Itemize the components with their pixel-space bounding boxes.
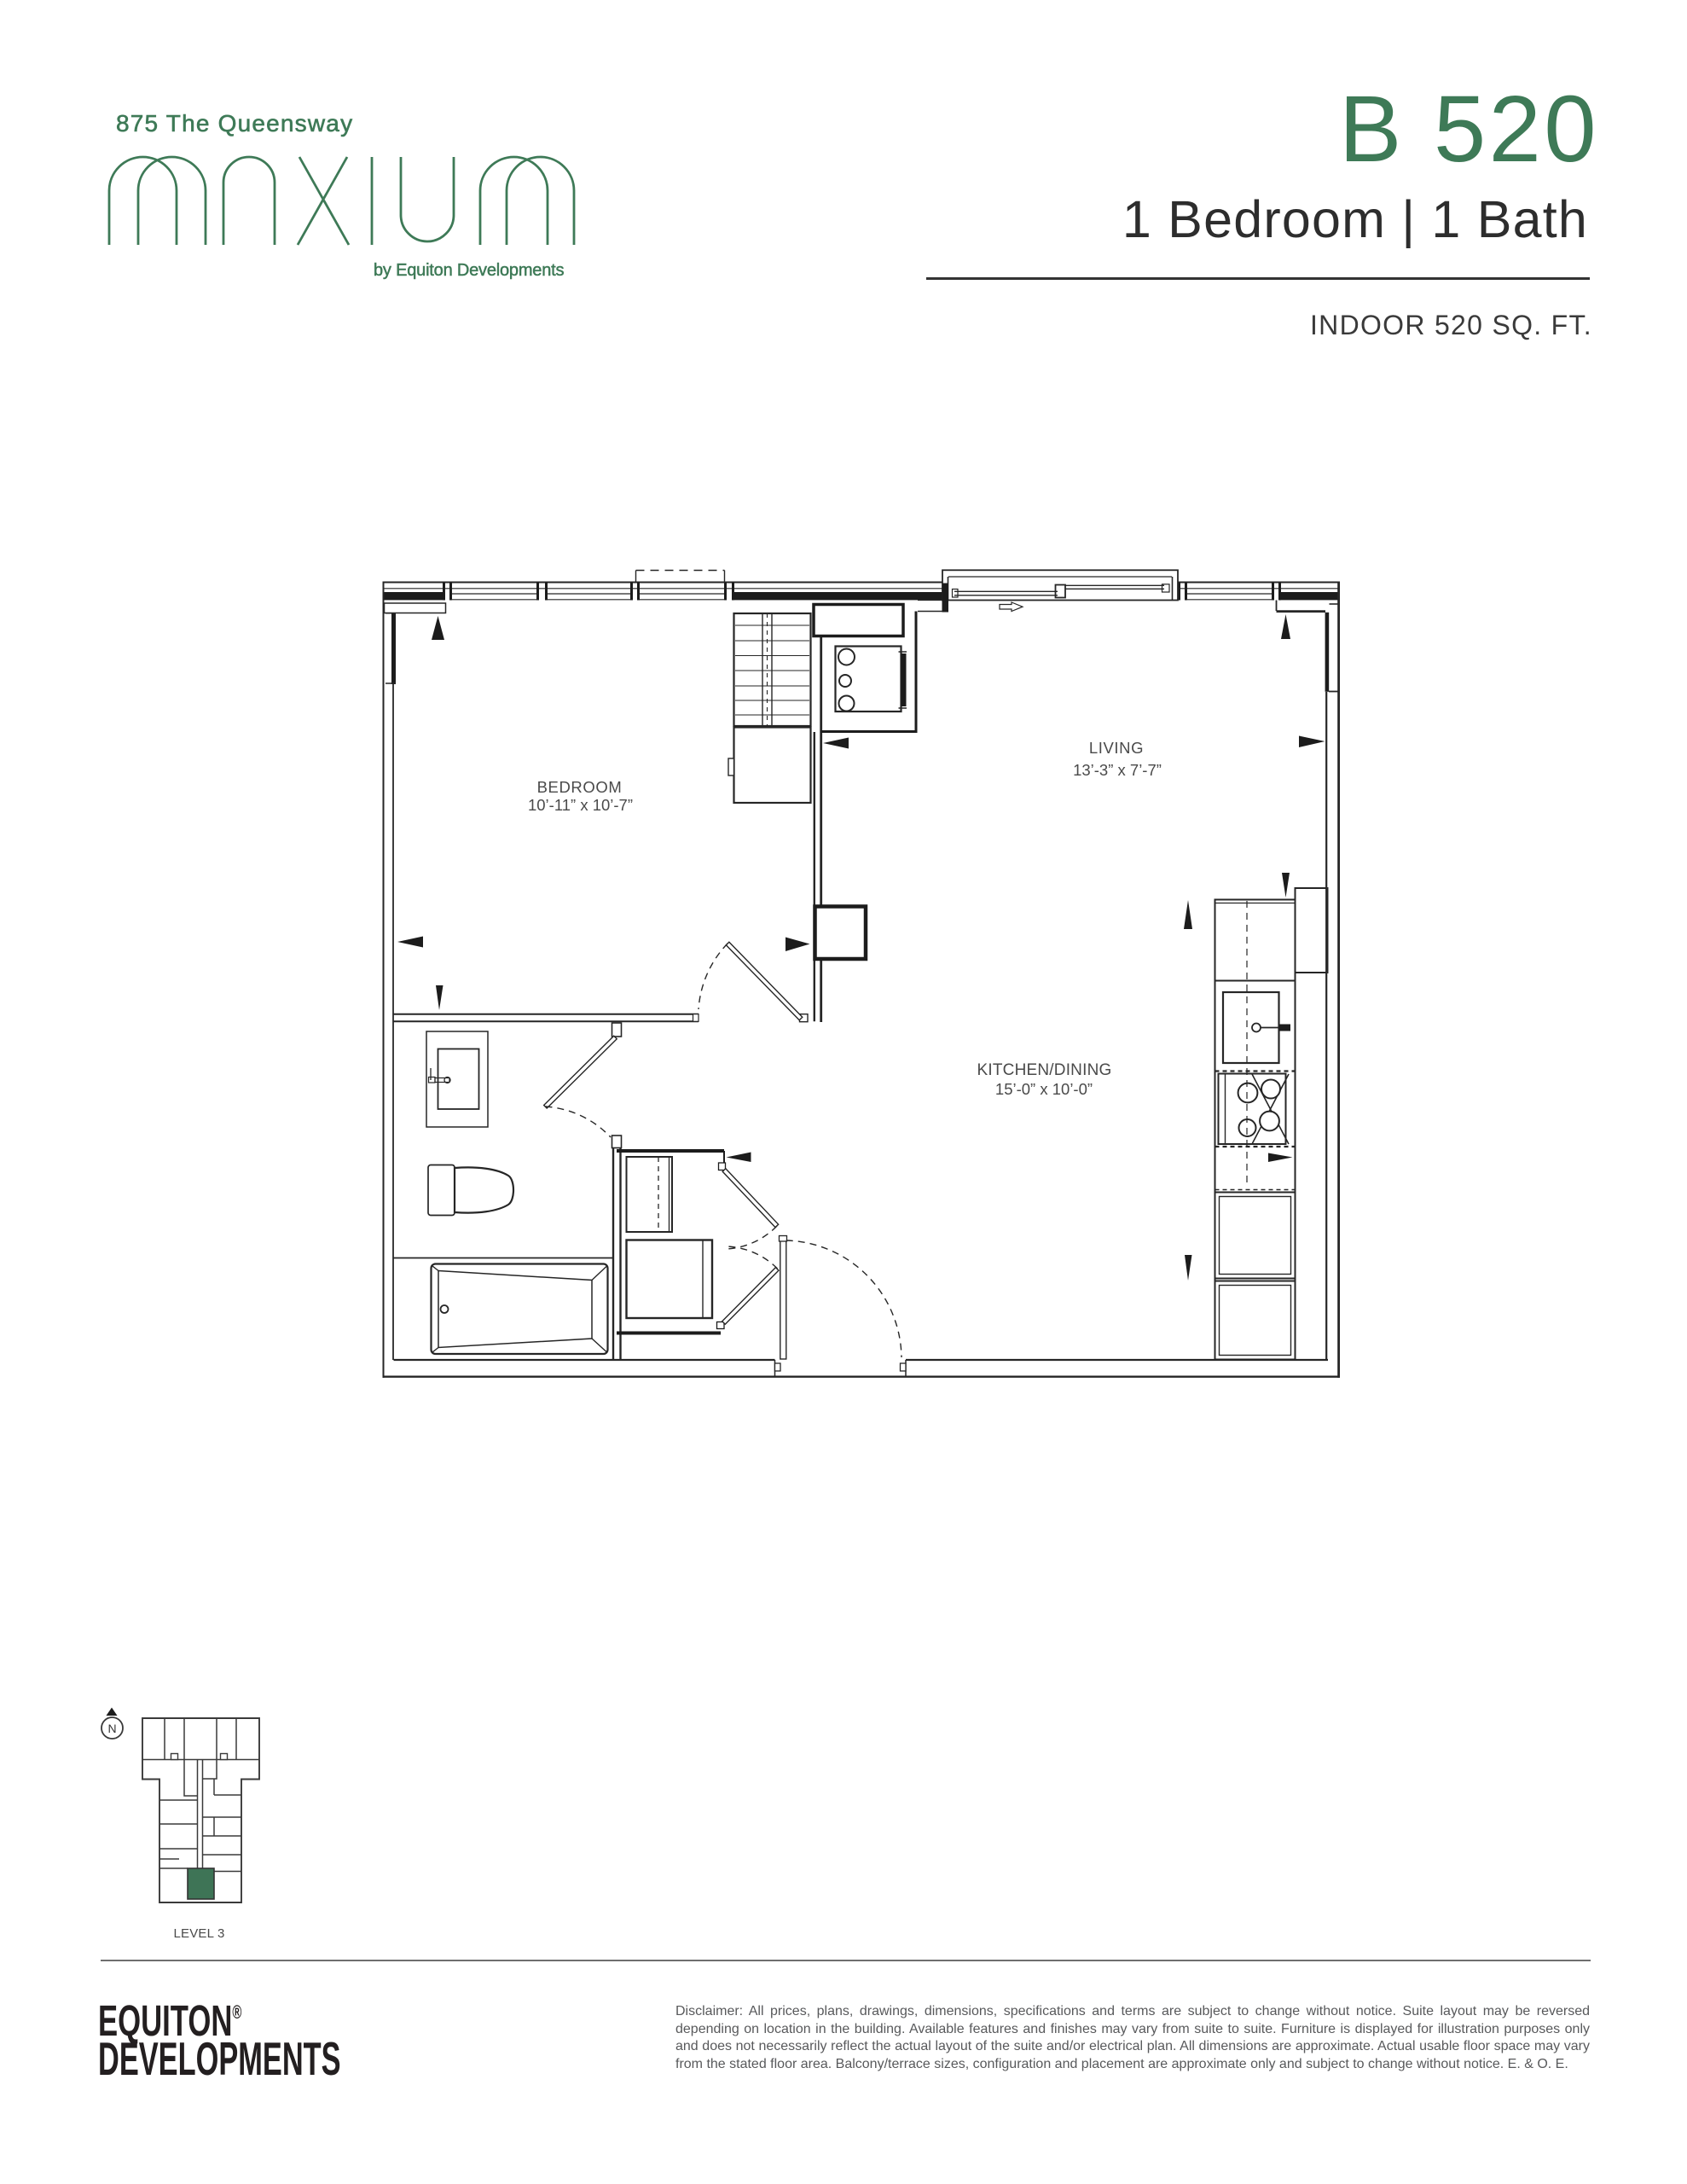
svg-text:LIVING: LIVING [1089, 739, 1144, 757]
svg-text:BEDROOM: BEDROOM [537, 778, 623, 796]
svg-text:KITCHEN/DINING: KITCHEN/DINING [977, 1061, 1112, 1079]
svg-text:13’-3” x 7’-7”: 13’-3” x 7’-7” [1073, 761, 1162, 779]
svg-text:10’-11” x 10’-7”: 10’-11” x 10’-7” [528, 796, 633, 814]
svg-text:15’-0” x 10’-0”: 15’-0” x 10’-0” [995, 1080, 1093, 1098]
svg-text:N: N [107, 1722, 116, 1735]
